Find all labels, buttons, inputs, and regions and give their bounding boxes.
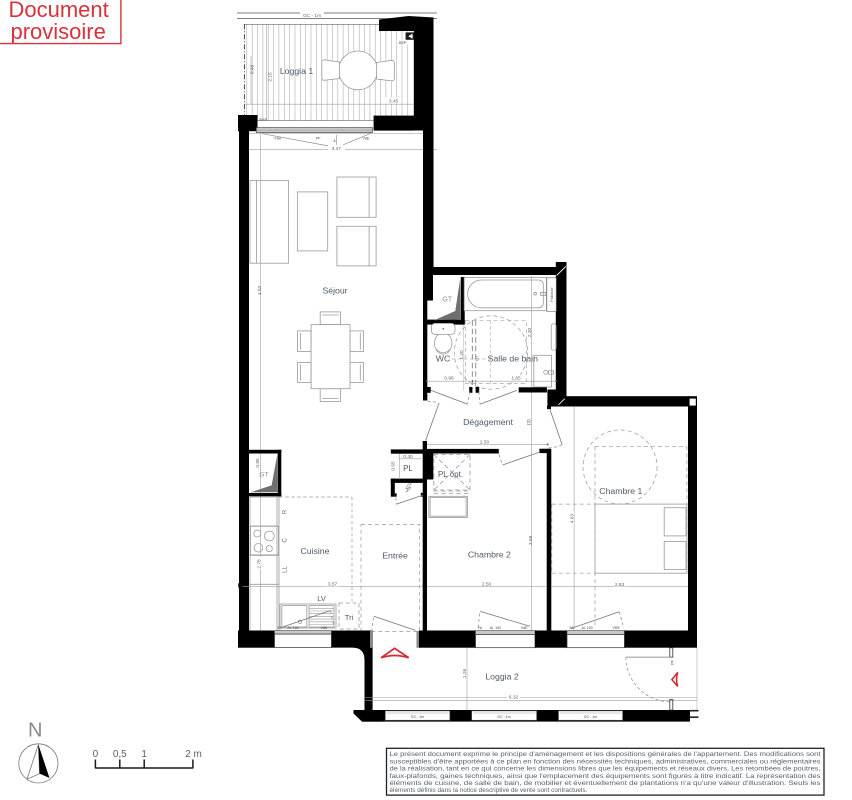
svg-text:éléments de cuisine, de salle: éléments de cuisine, de salle de bain, d… (390, 780, 821, 787)
svg-text:VRE: VRE (613, 626, 621, 630)
svg-text:Séjour: Séjour (322, 286, 347, 296)
svg-text:GT: GT (259, 472, 268, 479)
svg-text:Loggia 2: Loggia 2 (485, 672, 519, 682)
svg-text:Seuil: Seuil (259, 118, 267, 122)
svg-text:6.32: 6.32 (509, 694, 519, 700)
svg-text:1.65: 1.65 (511, 376, 521, 382)
svg-text:0.85: 0.85 (255, 458, 261, 468)
svg-text:5: 5 (475, 356, 479, 363)
svg-text:0.96: 0.96 (444, 376, 454, 382)
svg-text:GC : 1m: GC : 1m (497, 715, 510, 719)
svg-text:GT: GT (442, 297, 452, 304)
svg-text:WC: WC (436, 354, 450, 364)
svg-text:Entrée: Entrée (382, 550, 408, 560)
svg-text:4.63: 4.63 (570, 514, 576, 524)
svg-text:2 m: 2 m (185, 749, 202, 760)
svg-text:R: R (527, 419, 531, 425)
svg-text:PL: PL (403, 464, 413, 473)
svg-text:GC - 1m: GC - 1m (303, 13, 321, 19)
svg-text:1.20: 1.20 (459, 350, 465, 360)
svg-text:2.50: 2.50 (480, 440, 490, 446)
svg-text:3.45: 3.45 (389, 99, 399, 105)
svg-text:1: 1 (141, 749, 147, 760)
svg-text:Salle de bain: Salle de bain (488, 353, 538, 363)
svg-text:FA: FA (570, 626, 575, 630)
svg-text:GC : 1m: GC : 1m (411, 715, 424, 719)
svg-text:Loggia 1: Loggia 1 (280, 66, 314, 76)
svg-text:de la réalisation, tant en ce: de la réalisation, tant en ce qui concer… (390, 766, 821, 773)
svg-text:3.47: 3.47 (332, 146, 342, 152)
svg-text:PF: PF (671, 659, 675, 664)
svg-text:0.55: 0.55 (391, 461, 397, 471)
svg-text:1.26: 1.26 (462, 669, 468, 679)
svg-text:3.57: 3.57 (328, 582, 338, 588)
svg-text:2.15: 2.15 (268, 72, 274, 82)
svg-text:LL: LL (283, 566, 289, 573)
svg-text:GC : 1m: GC : 1m (584, 715, 597, 719)
svg-text:Dégagement: Dégagement (463, 417, 513, 427)
svg-text:2.30: 2.30 (527, 328, 533, 338)
svg-text:Paillasse: Paillasse (550, 287, 554, 301)
svg-text:0.48: 0.48 (250, 65, 256, 75)
svg-text:Chambre 1: Chambre 1 (599, 486, 642, 496)
svg-text:4.53: 4.53 (257, 286, 263, 296)
svg-text:FA: FA (278, 626, 283, 630)
svg-text:R: R (283, 509, 289, 514)
svg-text:PF: PF (316, 137, 321, 141)
svg-text:Cuisine: Cuisine (301, 546, 330, 556)
svg-text:2.78: 2.78 (257, 559, 263, 569)
svg-text:VdE: VdE (521, 626, 528, 630)
svg-text:2.83: 2.83 (615, 582, 625, 588)
svg-text:provisoire: provisoire (11, 19, 106, 44)
svg-text:0.40: 0.40 (403, 454, 413, 460)
svg-text:C: C (283, 538, 289, 543)
svg-text:N: N (28, 720, 42, 742)
svg-text:VdE: VdE (363, 137, 370, 141)
svg-text:0,5: 0,5 (113, 749, 127, 760)
svg-text:Tri: Tri (345, 613, 354, 622)
svg-text:PL opt.: PL opt. (438, 470, 463, 479)
svg-text:VdE: VdE (321, 626, 328, 630)
svg-text:2.50: 2.50 (482, 582, 492, 588)
svg-text:faux-plafonds, gaines techniqu: faux-plafonds, gaines techniques, ainsi … (390, 773, 821, 780)
svg-text:Le présent document exprime le: Le présent document exprime le principe … (390, 751, 821, 758)
svg-text:Chambre 2: Chambre 2 (468, 549, 511, 559)
svg-text:DEP: DEP (399, 41, 407, 45)
svg-text:Al. 100: Al. 100 (490, 626, 501, 630)
svg-text:Al. 100: Al. 100 (288, 626, 299, 630)
svg-text:susceptibles d'être apportées: susceptibles d'être apportées à ce plan … (390, 758, 821, 765)
svg-text:éléments définis dans la notic: éléments définis dans la notice descript… (390, 787, 588, 794)
svg-text:0: 0 (93, 749, 99, 760)
svg-text:LV: LV (317, 594, 326, 603)
svg-text:Al. 100: Al. 100 (582, 626, 593, 630)
svg-text:3.68: 3.68 (528, 536, 534, 546)
svg-text:FA: FA (478, 626, 483, 630)
svg-text:Fixe: Fixe (275, 137, 282, 141)
